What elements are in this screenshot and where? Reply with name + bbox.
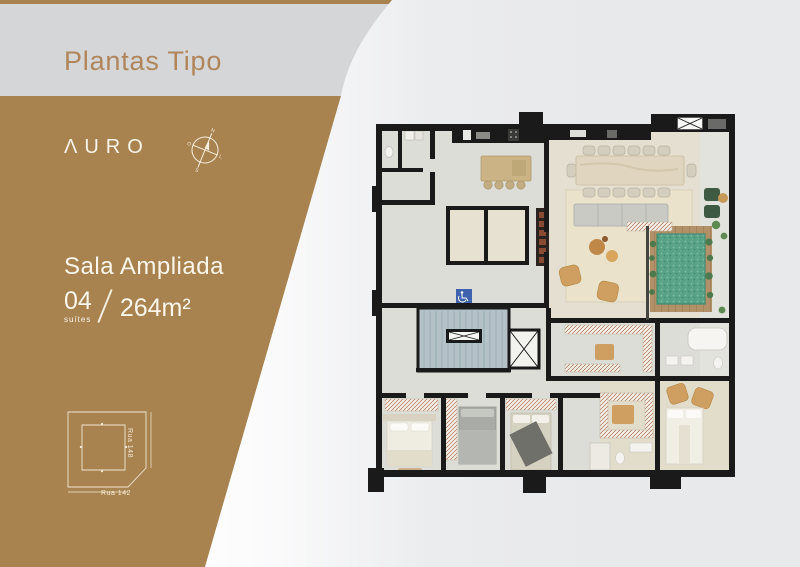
plan-name: Sala Ampliada — [64, 253, 224, 281]
compass-icon: N S O L — [180, 125, 230, 175]
svg-text:O: O — [186, 141, 192, 148]
brand-logo: ΛURO — [64, 136, 150, 159]
svg-text:L: L — [218, 154, 223, 161]
floor-plan-image — [368, 108, 740, 498]
bedroom-1 — [383, 399, 438, 473]
suites-stat: 04 suítes — [64, 288, 92, 324]
slash-divider — [97, 289, 112, 323]
accessibility-sign — [456, 289, 472, 303]
brochure-page: Plantas Tipo ΛURO N S O L Sala Ampliada … — [0, 0, 800, 567]
site-map-diagram — [56, 398, 166, 498]
page-title: Plantas Tipo — [64, 46, 222, 77]
elevator-shaft — [509, 330, 539, 368]
area-value: 264m² — [120, 294, 191, 323]
plan-stats: 04 suítes 264m² — [64, 288, 191, 324]
svg-text:S: S — [194, 167, 200, 174]
suites-value: 04 — [64, 288, 92, 315]
bedroom-2 — [446, 399, 496, 464]
kitchen-island — [481, 156, 531, 189]
svg-text:N: N — [210, 128, 216, 135]
stairs — [418, 308, 509, 371]
street-label-right: Rua 148 — [126, 428, 133, 488]
bedroom-3 — [506, 399, 556, 470]
suites-label: suítes — [64, 315, 91, 324]
street-label-bottom: Rua 142 — [76, 490, 156, 497]
pool — [657, 234, 705, 304]
